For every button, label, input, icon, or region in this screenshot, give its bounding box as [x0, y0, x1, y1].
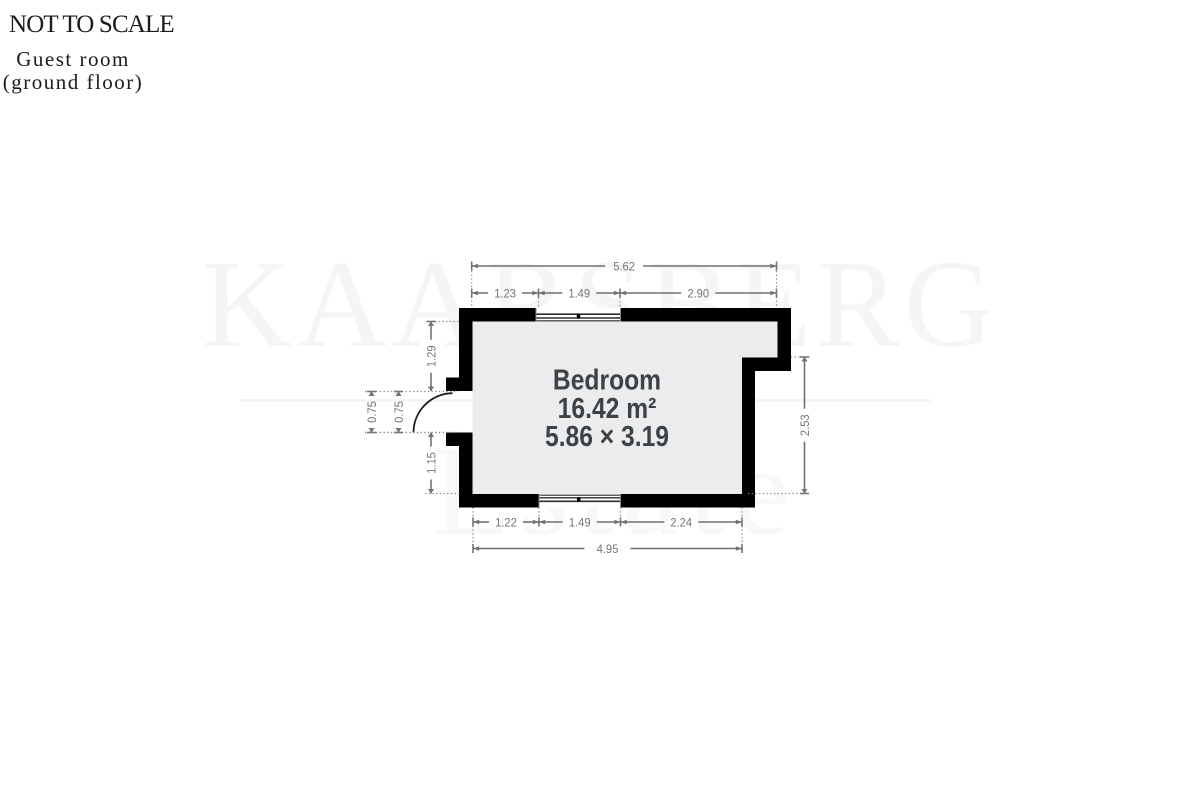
svg-text:1.49: 1.49: [569, 515, 591, 529]
svg-text:1.23: 1.23: [494, 286, 516, 300]
svg-text:5.86 × 3.19: 5.86 × 3.19: [545, 420, 669, 452]
svg-text:Bedroom: Bedroom: [553, 364, 661, 396]
svg-text:2.24: 2.24: [670, 515, 692, 529]
svg-text:1.15: 1.15: [424, 452, 438, 474]
svg-text:0.75: 0.75: [365, 401, 379, 423]
svg-text:5.62: 5.62: [613, 259, 635, 273]
svg-text:2.90: 2.90: [687, 286, 709, 300]
svg-text:1.29: 1.29: [424, 345, 438, 367]
svg-text:1.22: 1.22: [495, 515, 517, 529]
svg-text:1.49: 1.49: [568, 286, 590, 300]
svg-text:0.75: 0.75: [392, 401, 406, 423]
svg-text:4.95: 4.95: [597, 542, 619, 556]
svg-text:2.53: 2.53: [798, 414, 812, 436]
